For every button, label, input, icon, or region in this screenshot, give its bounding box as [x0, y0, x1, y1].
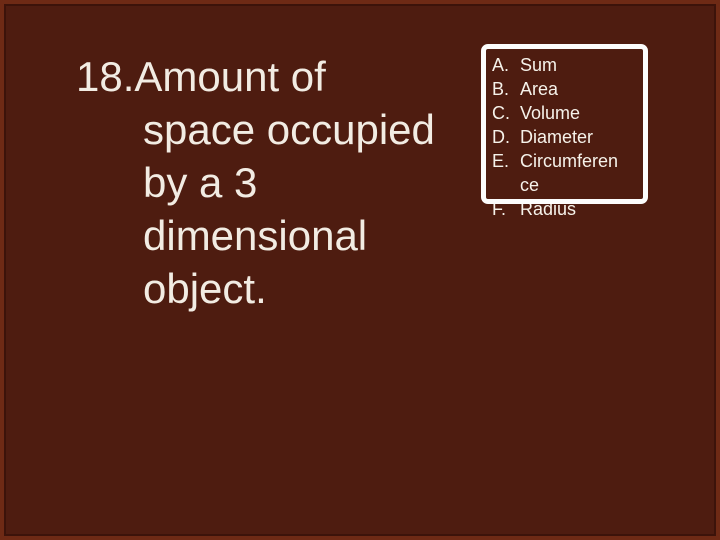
question-line: object.: [143, 262, 496, 315]
question-text: 18.Amount of space occupied by a 3 dimen…: [76, 50, 496, 315]
question-line: space occupied: [143, 103, 496, 156]
question-line: by a 3: [143, 156, 496, 209]
presentation-slide: 18.Amount of space occupied by a 3 dimen…: [0, 0, 720, 540]
choice-box-outline: [481, 44, 648, 204]
question-line: 18.Amount of: [76, 50, 496, 103]
question-line: dimensional: [143, 209, 496, 262]
